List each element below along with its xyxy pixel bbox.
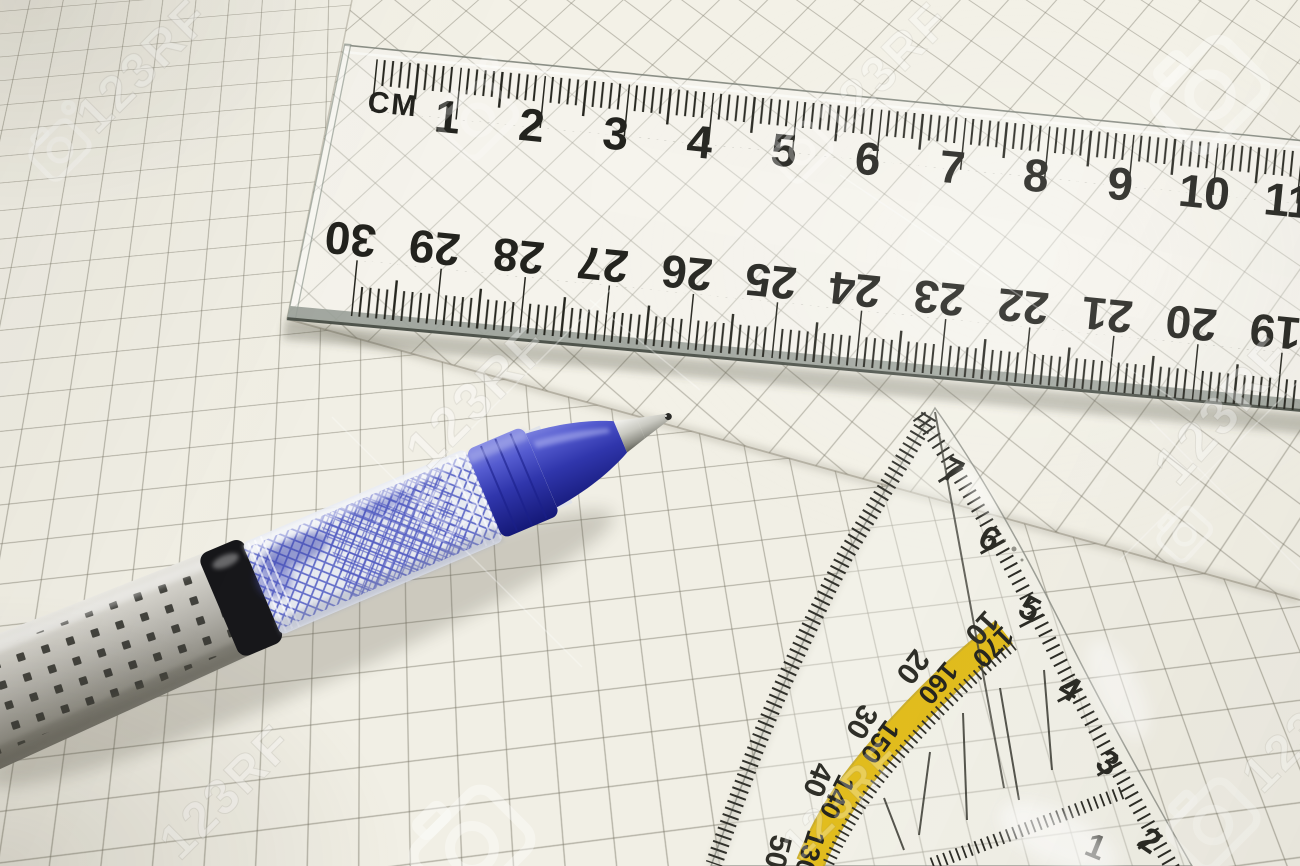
stock-photo-stationery: 7 6 5 4 3 2 1 10 20 30 40 50 170 160 150 [0, 0, 1300, 866]
cm-number: 24 [826, 261, 882, 318]
cm-number: 21 [1079, 287, 1135, 344]
watermark-text: 123RF [65, 0, 221, 144]
watermark-text: 123RF [1231, 647, 1300, 803]
camera-icon [1150, 500, 1213, 564]
cm-number: 9 [1105, 157, 1136, 211]
cm-number: 25 [743, 253, 799, 310]
ruler-unit-label: CM [366, 86, 420, 124]
cm-number: 3 [600, 106, 631, 160]
cm-number: 27 [575, 236, 631, 293]
cm-number: 7 [937, 140, 968, 194]
cm-number: 11 [1262, 172, 1300, 229]
cm-number: 8 [1021, 148, 1052, 202]
cm-number: 20 [1163, 295, 1219, 352]
cm-number: 28 [491, 228, 547, 285]
set-square: 7 6 5 4 3 2 1 10 20 30 40 50 170 160 150 [709, 408, 1192, 866]
cm-number: 29 [406, 220, 462, 277]
cm-number: 22 [995, 278, 1051, 335]
cm-number: 26 [659, 245, 715, 302]
ruler: CM 1 2 3 4 5 6 7 8 9 10 11 30 29 28 27 2… [283, 41, 1300, 448]
pen [0, 356, 697, 778]
cm-number: 6 [853, 131, 884, 185]
cm-number: 23 [911, 270, 967, 327]
scene-overlay: 7 6 5 4 3 2 1 10 20 30 40 50 170 160 150 [0, 0, 1300, 866]
cm-number: 10 [1176, 164, 1232, 221]
camera-icon [396, 772, 537, 866]
cm-number: 30 [322, 211, 378, 268]
cm-number: 2 [516, 98, 547, 152]
